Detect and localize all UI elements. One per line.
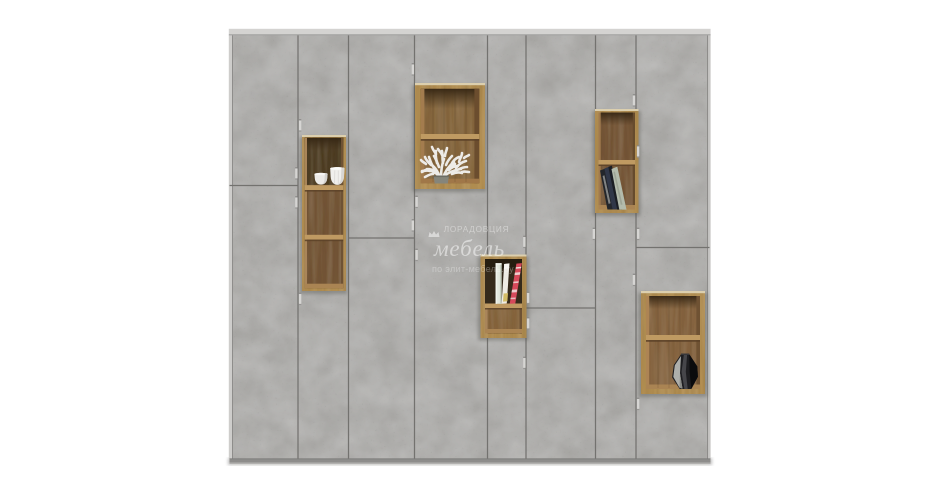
svg-text:по элит-мебель.ру: по элит-мебель.ру [432,264,514,274]
svg-text:ЛОРАДОВЦИЯ: ЛОРАДОВЦИЯ [444,225,510,234]
svg-text:мебель: мебель [433,236,505,261]
